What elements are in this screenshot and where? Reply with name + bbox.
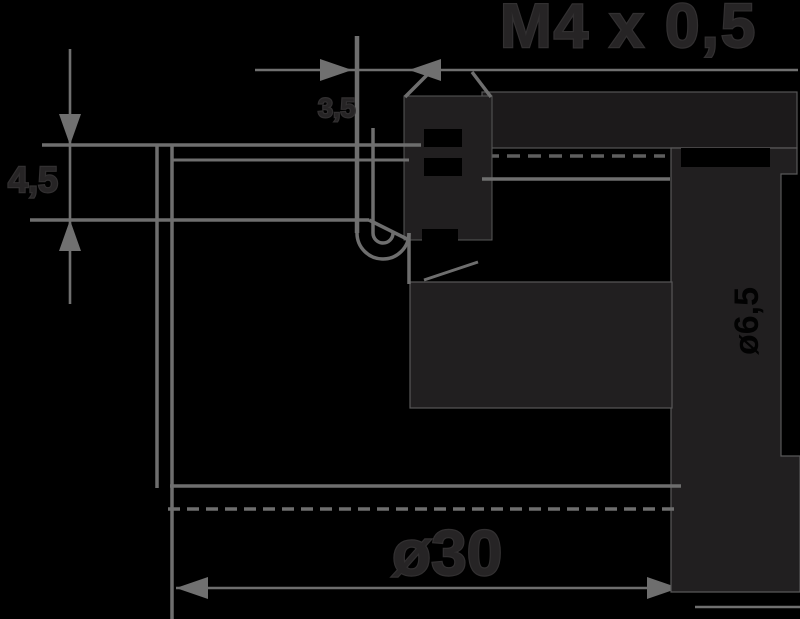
svg-text:3,5: 3,5: [318, 93, 356, 123]
svg-text:ø30: ø30: [392, 517, 502, 589]
svg-text:4,5: 4,5: [8, 159, 58, 200]
svg-text:ø6,5: ø6,5: [728, 287, 766, 355]
svg-text:M4 x 0,5: M4 x 0,5: [500, 0, 757, 61]
